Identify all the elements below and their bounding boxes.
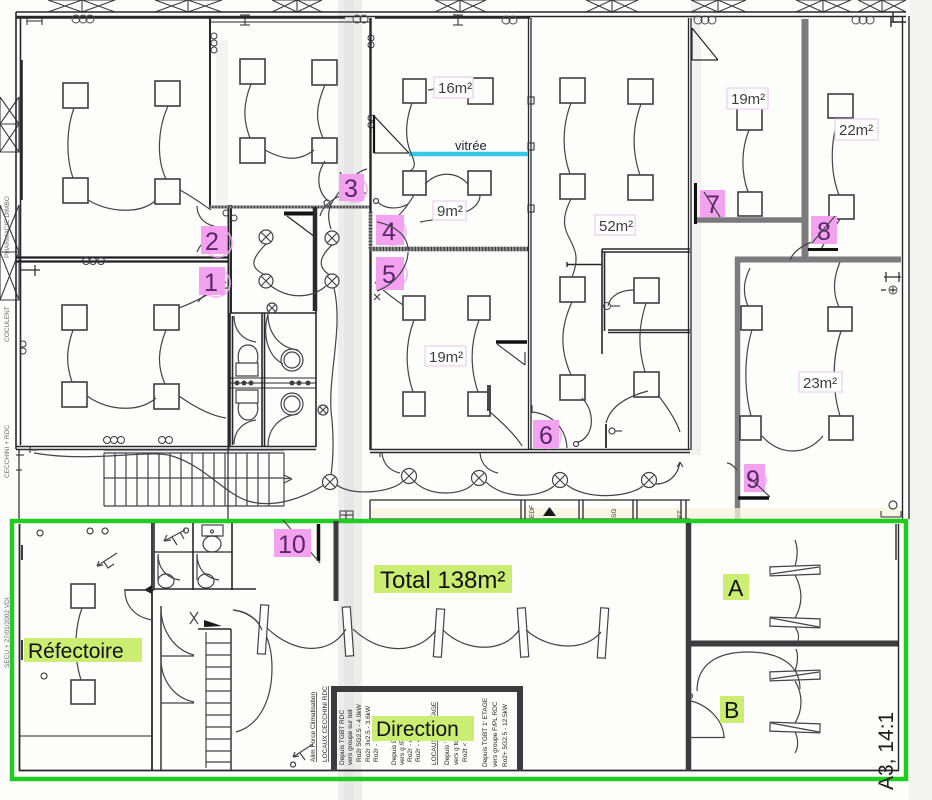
svg-text:4: 4 <box>382 218 396 246</box>
svg-text:B: B <box>724 697 739 723</box>
svg-text:8: 8 <box>817 218 831 246</box>
svg-text:PHARMACIE DIMBO: PHARMACIE DIMBO <box>4 196 11 258</box>
svg-text:6: 6 <box>539 422 553 450</box>
svg-text:Ro2r 3x2.5 - 3.6kW: Ro2r 3x2.5 - 3.6kW <box>365 705 372 762</box>
svg-text:3: 3 <box>344 175 358 203</box>
svg-text:vitrée: vitrée <box>455 138 487 153</box>
svg-text:EDF: EDF <box>529 505 536 518</box>
svg-text:16m²: 16m² <box>438 80 472 97</box>
svg-text:Ro2+ 5G2.5 - 12.5kW: Ro2+ 5G2.5 - 12.5kW <box>502 703 509 767</box>
svg-text:Depuis TGBT RDC: Depuis TGBT RDC <box>339 710 346 765</box>
svg-text:Ro2r 5G2.5 - 4.0kW: Ro2r 5G2.5 - 4.0kW <box>356 703 363 762</box>
svg-text:A: A <box>728 575 744 601</box>
svg-text:vers groupe sur toit: vers groupe sur toit <box>347 709 354 765</box>
svg-text:FT: FT <box>677 510 684 518</box>
svg-text:SG: SG <box>611 509 618 518</box>
svg-text:1: 1 <box>204 269 218 297</box>
svg-text:10: 10 <box>278 531 306 559</box>
svg-text:Alim Force Climatisation: Alim Force Climatisation <box>310 692 317 762</box>
svg-text:9m²: 9m² <box>437 203 463 220</box>
svg-text:Total 138m²: Total 138m² <box>380 567 505 594</box>
svg-text:22m²: 22m² <box>839 122 873 139</box>
svg-text:19m²: 19m² <box>731 91 765 108</box>
svg-text:CECCHINI + RDC: CECCHINI + RDC <box>4 425 11 478</box>
svg-text:Réfectoire: Réfectoire <box>28 640 124 663</box>
svg-text:COCULENT: COCULENT <box>4 306 11 342</box>
svg-text:SECU + 27/01/2002 VDI: SECU + 27/01/2002 VDI <box>4 597 11 668</box>
svg-text:Depuis TGBT 1' ETAGE: Depuis TGBT 1' ETAGE <box>482 697 489 767</box>
svg-text:2: 2 <box>205 228 219 256</box>
svg-text:vers groupe F/PL RDC: vers groupe F/PL RDC <box>492 701 499 767</box>
svg-text:52m²: 52m² <box>599 218 633 235</box>
svg-text:Direction: Direction <box>376 718 459 741</box>
svg-text:A3, 14:1: A3, 14:1 <box>875 712 898 790</box>
svg-text:23m²: 23m² <box>803 375 837 392</box>
svg-text:19m²: 19m² <box>429 349 463 366</box>
svg-text:LOCAUX CECCHINI RDC: LOCAUX CECCHINI RDC <box>322 686 329 762</box>
